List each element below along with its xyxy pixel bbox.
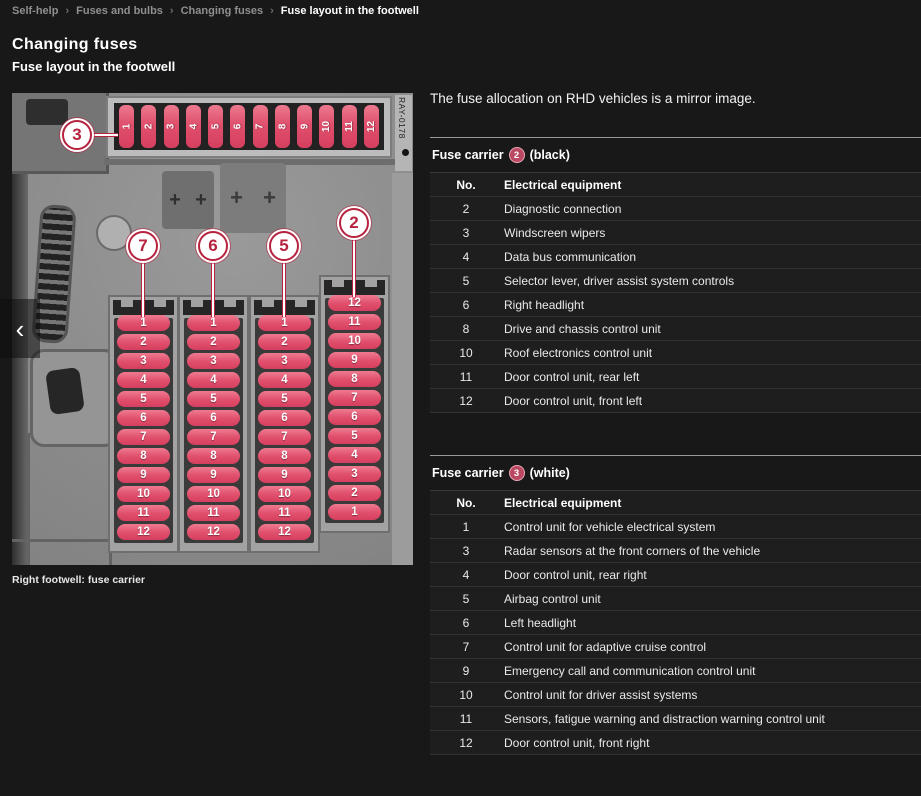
- breadcrumb-separator-icon: ›: [65, 5, 69, 17]
- table-title-text: Fuse carrier: [432, 148, 504, 162]
- callout-leader-line: [282, 261, 286, 317]
- fuse-cell: 9: [328, 352, 381, 368]
- equipment-label: Diagnostic connection: [502, 202, 921, 216]
- table-row: 3 Windscreen wipers: [430, 221, 921, 245]
- fuse-column-6: 123456789101112: [178, 295, 249, 553]
- breadcrumb: Self-help › Fuses and bulbs › Changing f…: [12, 5, 419, 17]
- fuse-carrier-illustration: 123456789101112 RAY-0178 3 7 6 5 2 12345…: [12, 93, 413, 565]
- column-header-equipment: Electrical equipment: [502, 496, 921, 510]
- fuse-cell: 4: [328, 447, 381, 463]
- fuse-cell: 5: [187, 391, 240, 407]
- fuse-number: 6: [430, 298, 502, 312]
- fuse-cell: 12: [258, 524, 311, 540]
- table-title-color: (black): [530, 148, 570, 162]
- fuse-cell: 9: [258, 467, 311, 483]
- fuse-cell: 9: [117, 467, 170, 483]
- fuse-cell: 6: [328, 409, 381, 425]
- illustration-detail: [96, 215, 132, 251]
- fuse-cell: 6: [230, 105, 245, 148]
- callout-leader-line: [91, 133, 118, 137]
- fuse-number: 8: [430, 322, 502, 336]
- equipment-label: Data bus communication: [502, 250, 921, 264]
- fuse-cell: 4: [117, 372, 170, 388]
- table-row: 5 Selector lever, driver assist system c…: [430, 269, 921, 293]
- fuse-number: 6: [430, 616, 502, 630]
- fuse-cell: 12: [187, 524, 240, 540]
- plus-hole-icon: [230, 185, 243, 211]
- fuse-cell: 5: [117, 391, 170, 407]
- breadcrumb-item-fuses-and-bulbs[interactable]: Fuses and bulbs: [76, 5, 163, 17]
- fuse-cell: 11: [258, 505, 311, 521]
- callout-leader-line: [211, 261, 215, 317]
- table-row: 6 Right headlight: [430, 293, 921, 317]
- fuse-cell: 1: [117, 315, 170, 331]
- callout-5: 5: [269, 231, 299, 261]
- table-row: 4 Data bus communication: [430, 245, 921, 269]
- fuse-cell: 4: [186, 105, 201, 148]
- table-row: 11 Sensors, fatigue warning and distract…: [430, 707, 921, 731]
- fuse-cell: 7: [328, 390, 381, 406]
- fuse-cell: 11: [342, 105, 357, 148]
- column-header-no: No.: [430, 496, 502, 510]
- chevron-left-icon: ‹: [16, 316, 25, 342]
- page-title: Changing fuses: [12, 36, 138, 54]
- fuse-cell: 1: [187, 315, 240, 331]
- fuse-cell: 1: [258, 315, 311, 331]
- table-row: 1 Control unit for vehicle electrical sy…: [430, 515, 921, 539]
- equipment-label: Control unit for driver assist systems: [502, 688, 921, 702]
- fuse-cell: 2: [328, 485, 381, 501]
- callout-6: 6: [198, 231, 228, 261]
- table-title: Fuse carrier 3 (white): [430, 456, 921, 491]
- equipment-label: Sensors, fatigue warning and distraction…: [502, 712, 921, 726]
- table-row: 11 Door control unit, rear left: [430, 365, 921, 389]
- fuse-cell: 11: [187, 505, 240, 521]
- table-title: Fuse carrier 2 (black): [430, 138, 921, 173]
- table-header-row: No. Electrical equipment: [430, 173, 921, 197]
- page-subtitle: Fuse layout in the footwell: [12, 59, 175, 74]
- fuse-cell: 3: [258, 353, 311, 369]
- fuse-cell: 12: [328, 295, 381, 311]
- equipment-label: Door control unit, front right: [502, 736, 921, 750]
- fuse-cell: 10: [319, 105, 334, 148]
- fuse-cell: 2: [258, 334, 311, 350]
- fuse-cell: 10: [258, 486, 311, 502]
- fuse-number: 5: [430, 592, 502, 606]
- illustration-detail: [26, 99, 68, 125]
- callout-3: 3: [62, 120, 92, 150]
- previous-image-button[interactable]: ‹: [0, 299, 40, 358]
- plus-hole-icon: [169, 189, 181, 212]
- table-row: 8 Drive and chassis control unit: [430, 317, 921, 341]
- connector-block: [162, 171, 214, 229]
- fuse-cell: 3: [164, 105, 179, 148]
- table-row: 10 Roof electronics control unit: [430, 341, 921, 365]
- plus-hole-icon: [263, 185, 276, 211]
- fuse-cell: 8: [275, 105, 290, 148]
- fuse-column-5: 123456789101112: [249, 295, 320, 553]
- equipment-label: Door control unit, front left: [502, 394, 921, 408]
- fuse-number: 5: [430, 274, 502, 288]
- fuse-cell: 4: [187, 372, 240, 388]
- equipment-label: Door control unit, rear left: [502, 370, 921, 384]
- fuse-cell: 2: [117, 334, 170, 350]
- fuse-cell: 11: [328, 314, 381, 330]
- fuse-number: 1: [430, 520, 502, 534]
- table-header-row: No. Electrical equipment: [430, 491, 921, 515]
- fuse-cell: 10: [117, 486, 170, 502]
- illustration-detail: [45, 367, 85, 415]
- equipment-label: Selector lever, driver assist system con…: [502, 274, 921, 288]
- illustration-detail: [392, 173, 413, 565]
- fuse-cell: 3: [328, 466, 381, 482]
- connector-block: [220, 163, 286, 233]
- top-fuse-strip: 123456789101112: [114, 103, 384, 150]
- fuse-number: 12: [430, 736, 502, 750]
- fuse-number: 10: [430, 688, 502, 702]
- fuse-number: 11: [430, 712, 502, 726]
- fuse-cell: 8: [187, 448, 240, 464]
- callout-2: 2: [339, 208, 369, 238]
- callout-badge-3: 3: [509, 465, 525, 481]
- fuse-cell: 6: [187, 410, 240, 426]
- plus-hole-icon: [195, 189, 207, 212]
- fuse-cell: 12: [117, 524, 170, 540]
- fuse-cell: 8: [258, 448, 311, 464]
- fuse-column-7: 123456789101112: [108, 295, 179, 553]
- equipment-label: Control unit for vehicle electrical syst…: [502, 520, 921, 534]
- fuse-cell: 1: [328, 504, 381, 520]
- equipment-label: Emergency call and communication control…: [502, 664, 921, 678]
- fuse-cell: 2: [141, 105, 156, 148]
- table-row: 12 Door control unit, front right: [430, 731, 921, 755]
- equipment-label: Drive and chassis control unit: [502, 322, 921, 336]
- fuse-number: 2: [430, 202, 502, 216]
- callout-leader-line: [141, 261, 145, 317]
- breadcrumb-item-current[interactable]: Fuse layout in the footwell: [281, 5, 419, 17]
- fuse-cell: 7: [258, 429, 311, 445]
- fuse-number: 4: [430, 250, 502, 264]
- fuse-cell: 1: [119, 105, 134, 148]
- content-panel: The fuse allocation on RHD vehicles is a…: [430, 91, 921, 755]
- fuse-cell: 10: [328, 333, 381, 349]
- fuse-number: 12: [430, 394, 502, 408]
- equipment-label: Windscreen wipers: [502, 226, 921, 240]
- fuse-cell: 9: [187, 467, 240, 483]
- fuse-cell: 2: [187, 334, 240, 350]
- table-title-color: (white): [530, 466, 570, 480]
- intro-note: The fuse allocation on RHD vehicles is a…: [430, 91, 921, 107]
- fuse-cell: 5: [328, 428, 381, 444]
- fuse-number: 3: [430, 226, 502, 240]
- fuse-cell: 11: [117, 505, 170, 521]
- breadcrumb-separator-icon: ›: [270, 5, 274, 17]
- fuse-cell: 8: [328, 371, 381, 387]
- fuse-cell: 9: [297, 105, 312, 148]
- callout-7: 7: [128, 231, 158, 261]
- equipment-label: Radar sensors at the front corners of th…: [502, 544, 921, 558]
- illustration-detail: [27, 433, 30, 565]
- fuse-cell: 3: [117, 353, 170, 369]
- fuse-cell: 6: [117, 410, 170, 426]
- fuse-cell: 5: [258, 391, 311, 407]
- illustration-detail: [12, 539, 112, 542]
- table-row: 9 Emergency call and communication contr…: [430, 659, 921, 683]
- breadcrumb-item-changing-fuses[interactable]: Changing fuses: [181, 5, 264, 17]
- column-header-no: No.: [430, 178, 502, 192]
- fuse-number: 10: [430, 346, 502, 360]
- table-row: 5 Airbag control unit: [430, 587, 921, 611]
- fuse-number: 4: [430, 568, 502, 582]
- equipment-label: Airbag control unit: [502, 592, 921, 606]
- equipment-label: Roof electronics control unit: [502, 346, 921, 360]
- breadcrumb-item-self-help[interactable]: Self-help: [12, 5, 58, 17]
- equipment-label: Control unit for adaptive cruise control: [502, 640, 921, 654]
- table-body: 2 Diagnostic connection 3 Windscreen wip…: [430, 197, 921, 413]
- table-row: 3 Radar sensors at the front corners of …: [430, 539, 921, 563]
- table-row: 7 Control unit for adaptive cruise contr…: [430, 635, 921, 659]
- equipment-label: Left headlight: [502, 616, 921, 630]
- table-row: 4 Door control unit, rear right: [430, 563, 921, 587]
- figure-reference-code: RAY-0178: [397, 97, 407, 169]
- fuse-carrier-2-table: Fuse carrier 2 (black) No. Electrical eq…: [430, 137, 921, 413]
- table-body: 1 Control unit for vehicle electrical sy…: [430, 515, 921, 755]
- equipment-label: Right headlight: [502, 298, 921, 312]
- table-title-text: Fuse carrier: [432, 466, 504, 480]
- fuse-cell: 10: [187, 486, 240, 502]
- fuse-number: 3: [430, 544, 502, 558]
- illustration-detail: [402, 149, 409, 156]
- equipment-label: Door control unit, rear right: [502, 568, 921, 582]
- fuse-number: 7: [430, 640, 502, 654]
- fuse-number: 9: [430, 664, 502, 678]
- fuse-cell: 12: [364, 105, 379, 148]
- breadcrumb-separator-icon: ›: [170, 5, 174, 17]
- figure-caption: Right footwell: fuse carrier: [12, 574, 145, 586]
- column-header-equipment: Electrical equipment: [502, 178, 921, 192]
- callout-badge-2: 2: [509, 147, 525, 163]
- fuse-cell: 3: [187, 353, 240, 369]
- table-row: 6 Left headlight: [430, 611, 921, 635]
- fuse-cell: 5: [208, 105, 223, 148]
- table-row: 2 Diagnostic connection: [430, 197, 921, 221]
- table-row: 10 Control unit for driver assist system…: [430, 683, 921, 707]
- callout-leader-line: [352, 238, 356, 297]
- fuse-carrier-3-table: Fuse carrier 3 (white) No. Electrical eq…: [430, 455, 921, 755]
- fuse-cell: 6: [258, 410, 311, 426]
- fuse-cell: 7: [187, 429, 240, 445]
- fuse-cell: 7: [117, 429, 170, 445]
- fuse-cell: 4: [258, 372, 311, 388]
- table-row: 12 Door control unit, front left: [430, 389, 921, 413]
- fuse-number: 11: [430, 370, 502, 384]
- fuse-cell: 8: [117, 448, 170, 464]
- fuse-column-2: 121110987654321: [319, 275, 390, 533]
- fuse-cell: 7: [253, 105, 268, 148]
